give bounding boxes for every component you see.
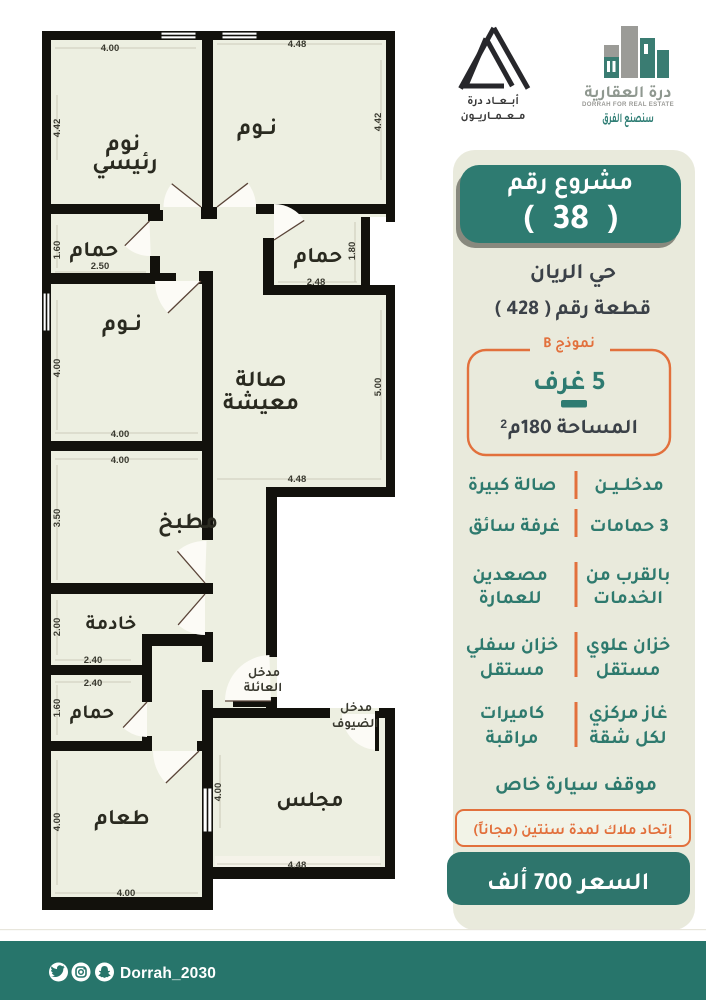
svg-text:4.48: 4.48 (288, 474, 307, 485)
svg-text:2.40: 2.40 (84, 655, 103, 666)
svg-text:2.48: 2.48 (307, 277, 326, 288)
svg-text:Dorrah_2030: Dorrah_2030 (120, 965, 216, 982)
svg-text:4.48: 4.48 (288, 39, 307, 50)
svg-text:2.40: 2.40 (84, 678, 103, 689)
svg-text:4.42: 4.42 (52, 119, 63, 138)
svg-text:4.48: 4.48 (288, 860, 307, 871)
svg-text:3.50: 3.50 (52, 509, 63, 528)
svg-text:4.00: 4.00 (117, 888, 136, 899)
svg-text:4.42: 4.42 (373, 113, 384, 132)
svg-text:4.00: 4.00 (111, 455, 130, 466)
svg-text:2: 2 (500, 417, 507, 431)
svg-text:4.00: 4.00 (101, 43, 120, 54)
svg-text:DORRAH FOR REAL ESTATE: DORRAH FOR REAL ESTATE (582, 101, 674, 108)
svg-text:4.00: 4.00 (111, 429, 130, 440)
svg-text:4.00: 4.00 (52, 813, 63, 832)
svg-text:4.00: 4.00 (52, 359, 63, 378)
svg-text:1.80: 1.80 (347, 242, 358, 261)
svg-text:5.00: 5.00 (373, 378, 384, 397)
svg-text:1.60: 1.60 (52, 699, 63, 718)
svg-text:1.60: 1.60 (52, 241, 63, 260)
svg-text:4.00: 4.00 (213, 783, 224, 802)
svg-text:2.50: 2.50 (91, 261, 110, 272)
svg-text:2.00: 2.00 (52, 618, 63, 637)
